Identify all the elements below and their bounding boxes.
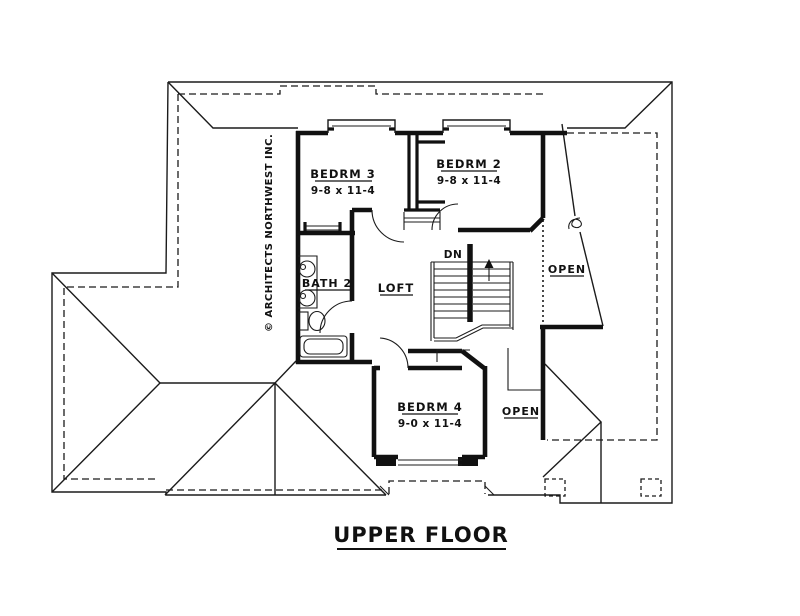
open-label-upper: OPEN: [548, 263, 586, 276]
bathtub: [300, 336, 347, 357]
open-label-lower: OPEN: [502, 405, 540, 418]
floor-plan-drawing: BEDRM 3 9-8 x 11-4 BEDRM 2 9-8 x 11-4 BE…: [0, 0, 800, 616]
dashed-footprint-lines: [64, 86, 661, 496]
copyright-text: © ARCHITECTS NORTHWEST INC.: [264, 134, 275, 332]
room-label-bath2: BATH 2: [302, 277, 352, 290]
toilet: [299, 312, 325, 331]
bedrm4-door-arc: [380, 338, 408, 368]
room-dims-bedrm4: 9-0 x 11-4: [398, 418, 462, 430]
bath-fixtures: [298, 256, 347, 357]
labels: BEDRM 3 9-8 x 11-4 BEDRM 2 9-8 x 11-4 BE…: [264, 134, 586, 430]
bedrm2-door-arc: [432, 204, 458, 230]
post-footprint: [545, 479, 565, 496]
floor-plan-page: BEDRM 3 9-8 x 11-4 BEDRM 2 9-8 x 11-4 BE…: [0, 0, 800, 616]
bedrm3-door-arc: [372, 210, 404, 242]
break-symbol: [569, 218, 582, 229]
window-cap: [376, 457, 396, 466]
room-dims-bedrm3: 9-8 x 11-4: [311, 185, 375, 197]
bedrm4-window: [398, 460, 462, 465]
room-label-bedrm4: BEDRM 4: [397, 400, 462, 414]
room-label-bedrm3: BEDRM 3: [310, 167, 375, 181]
open-area-break-line: [562, 124, 603, 326]
stairs-dn-label: DN: [444, 249, 463, 261]
page-title: UPPER FLOOR: [333, 523, 509, 547]
room-dims-bedrm2: 9-8 x 11-4: [437, 175, 501, 187]
post-footprint: [641, 479, 661, 496]
title-block: UPPER FLOOR: [333, 523, 509, 549]
room-label-loft: LOFT: [378, 281, 414, 295]
room-label-bedrm2: BEDRM 2: [436, 157, 501, 171]
